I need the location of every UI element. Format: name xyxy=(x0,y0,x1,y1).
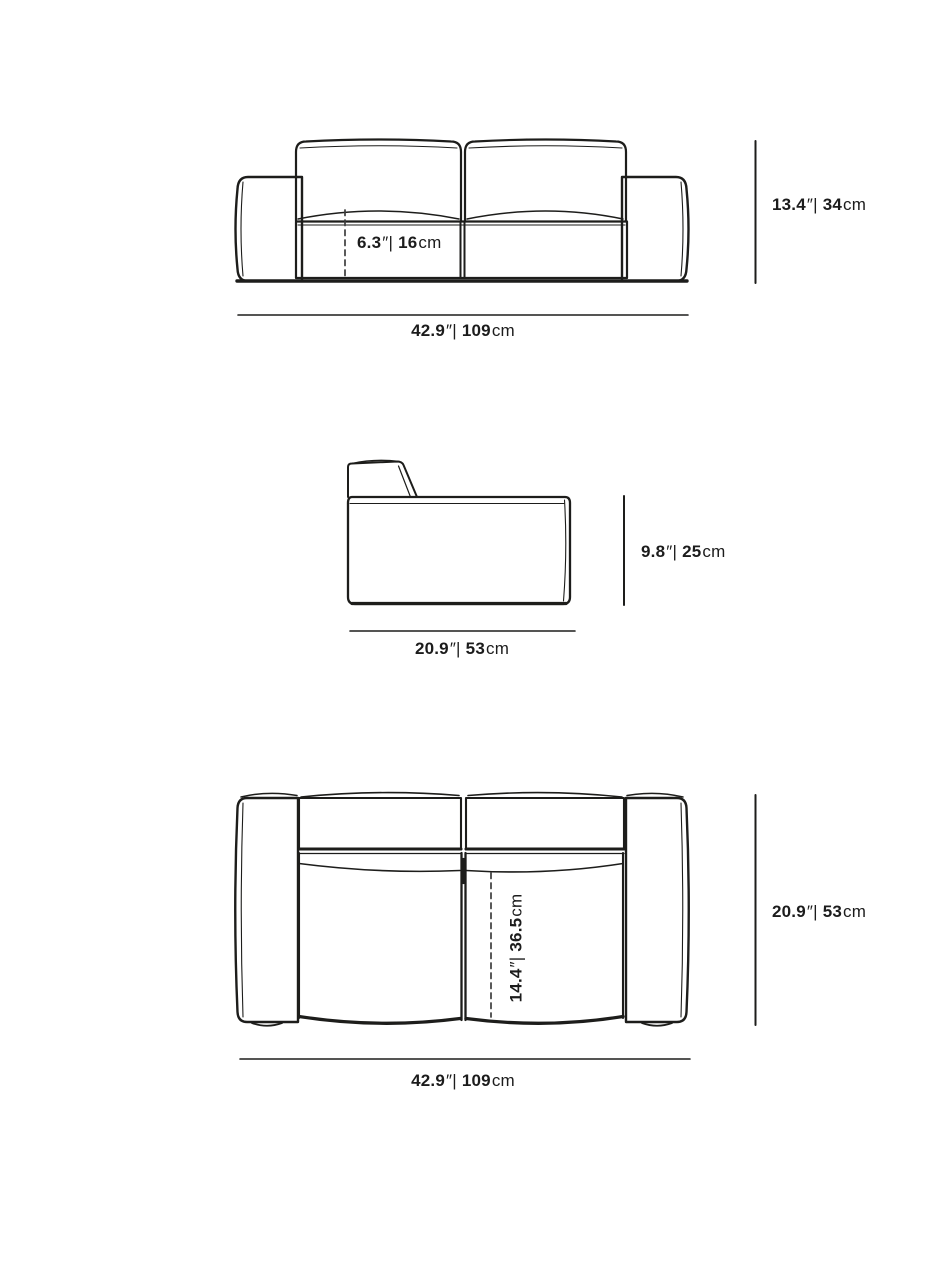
top-overall-width-inches: 42.9 xyxy=(411,1071,445,1090)
inch-pipe-separator: ″| xyxy=(446,1071,457,1090)
side-seat-height-inches: 9.8 xyxy=(641,542,665,561)
top-seat-left-front-curve xyxy=(299,1017,460,1024)
front-overall-height-cm: 34 xyxy=(823,195,842,214)
top-seat-depth-label: 14.4″|36.5cm xyxy=(508,894,525,1003)
cm-unit: cm xyxy=(492,1071,515,1090)
top-seat-right-back-seam xyxy=(466,864,623,872)
top-left-arm-inner-line xyxy=(241,803,243,1017)
front-seat-height-inches: 6.3 xyxy=(357,233,381,252)
top-seat-depth-inches: 14.4 xyxy=(507,968,526,1002)
top-seat-left-back-seam xyxy=(299,864,460,872)
side-view xyxy=(348,460,624,631)
cm-unit: cm xyxy=(843,902,866,921)
front-back-cushion-left-seam xyxy=(298,211,459,219)
inch-pipe-separator: ″| xyxy=(807,195,818,214)
top-overall-width-cm: 109 xyxy=(462,1071,491,1090)
side-depth-inches: 20.9 xyxy=(415,639,449,658)
top-right-arm-foot-arc xyxy=(642,1023,672,1026)
side-backrest xyxy=(348,462,417,498)
top-overall-depth-label: 20.9″|53cm xyxy=(772,903,866,920)
side-body-right-inner-line xyxy=(564,500,566,601)
front-back-cushion-right-seam xyxy=(467,211,623,219)
front-overall-width-cm: 109 xyxy=(462,321,491,340)
front-overall-width-label: 42.9″|109cm xyxy=(411,322,515,339)
top-back-cushion-right xyxy=(466,798,624,849)
top-right-arm xyxy=(626,798,689,1022)
cm-unit: cm xyxy=(507,894,526,917)
top-left-arm-top-arc xyxy=(241,793,297,797)
top-right-arm-inner-line xyxy=(681,803,683,1017)
top-overall-depth-cm: 53 xyxy=(823,902,842,921)
dimension-diagram-page: 6.3″|16cm 13.4″|34cm 42.9″|109cm 9.8″|25… xyxy=(0,0,933,1277)
front-overall-height-label: 13.4″|34cm xyxy=(772,196,866,213)
inch-pipe-separator: ″| xyxy=(666,542,677,561)
front-back-cushion-left xyxy=(296,140,461,222)
inch-pipe-separator: ″| xyxy=(446,321,457,340)
cm-unit: cm xyxy=(418,233,441,252)
front-seat-height-cm: 16 xyxy=(398,233,417,252)
inch-pipe-separator: ″| xyxy=(807,902,818,921)
top-left-arm-foot-arc xyxy=(252,1023,282,1026)
front-right-arm xyxy=(622,177,689,281)
side-seat-height-cm: 25 xyxy=(682,542,701,561)
top-back-cushion-right-top-arc xyxy=(468,793,622,797)
top-overall-depth-inches: 20.9 xyxy=(772,902,806,921)
cm-unit: cm xyxy=(492,321,515,340)
front-overall-width-inches: 42.9 xyxy=(411,321,445,340)
top-overall-width-label: 42.9″|109cm xyxy=(411,1072,515,1089)
front-back-cushion-right-inner-top xyxy=(469,146,622,148)
cm-unit: cm xyxy=(486,639,509,658)
side-body xyxy=(348,497,570,604)
top-back-cushion-left-top-arc xyxy=(301,793,459,797)
front-overall-height-inches: 13.4 xyxy=(772,195,806,214)
cm-unit: cm xyxy=(843,195,866,214)
top-view xyxy=(235,793,755,1059)
top-right-arm-top-arc xyxy=(627,793,683,797)
inch-pipe-separator: ″| xyxy=(382,233,393,252)
front-left-arm-inner-line xyxy=(241,182,243,276)
front-back-cushion-left-inner-top xyxy=(300,146,457,148)
front-view xyxy=(236,140,756,316)
side-backrest-inner-line xyxy=(399,466,411,497)
top-left-arm xyxy=(235,798,298,1022)
side-seat-height-label: 9.8″|25cm xyxy=(641,543,725,560)
inch-pipe-separator: ″| xyxy=(507,957,526,968)
top-seat-depth-cm: 36.5 xyxy=(507,918,526,952)
front-left-arm xyxy=(236,177,303,281)
front-right-arm-inner-line xyxy=(681,182,683,276)
side-depth-label: 20.9″|53cm xyxy=(415,640,509,657)
inch-pipe-separator: ″| xyxy=(450,639,461,658)
top-back-cushion-left xyxy=(299,798,461,849)
cm-unit: cm xyxy=(702,542,725,561)
side-depth-cm: 53 xyxy=(466,639,485,658)
top-seat-right-front-curve xyxy=(466,1017,623,1024)
front-back-cushion-right xyxy=(465,140,626,222)
front-seat-height-label: 6.3″|16cm xyxy=(357,234,441,251)
